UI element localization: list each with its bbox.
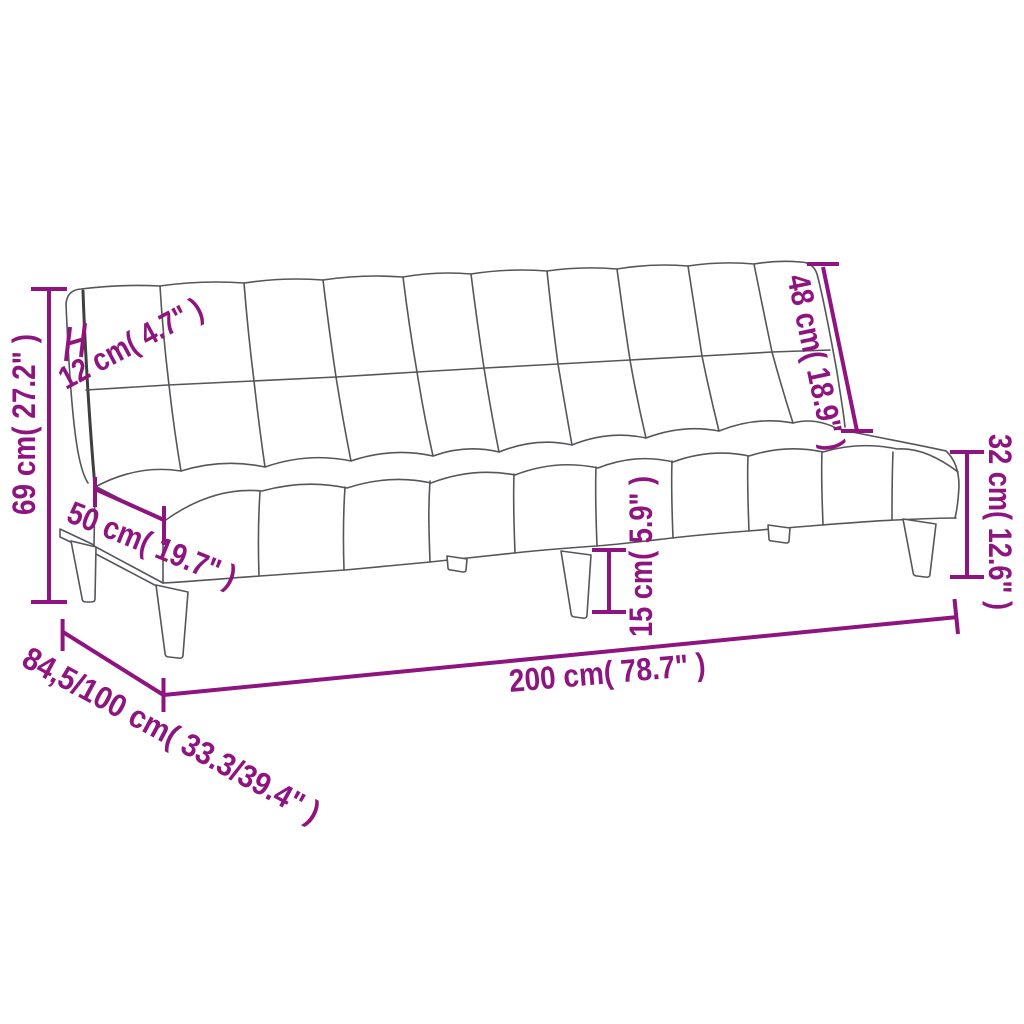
svg-text:15 cm( 5.9" ): 15 cm( 5.9" )	[623, 476, 659, 637]
svg-text:84,5/100 cm( 33.3/39.4" ): 84,5/100 cm( 33.3/39.4" )	[17, 640, 327, 831]
svg-text:32 cm( 12.6" ): 32 cm( 12.6" )	[982, 434, 1018, 610]
svg-text:69 cm( 27.2" ): 69 cm( 27.2" )	[6, 334, 42, 515]
svg-text:200 cm( 78.7" ): 200 cm( 78.7" )	[507, 646, 706, 699]
